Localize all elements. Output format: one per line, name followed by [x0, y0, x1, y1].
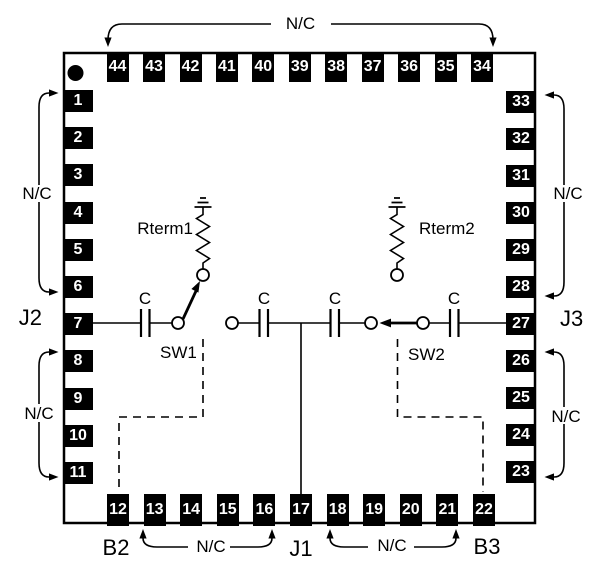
pin-3: 3 [63, 164, 93, 186]
pin-21: 21 [436, 494, 458, 526]
pin-26: 26 [506, 350, 536, 372]
pin-32: 32 [506, 128, 536, 150]
pin-10: 10 [63, 425, 93, 447]
nc-label-bottom-left: N/C [189, 538, 233, 555]
center-path [226, 309, 377, 494]
pin-30: 30 [506, 202, 536, 224]
pin-37: 37 [362, 52, 384, 82]
port-label-b2: B2 [94, 537, 138, 559]
pin-41: 41 [216, 52, 238, 82]
pin-14: 14 [180, 494, 202, 526]
cap3-label: C [325, 290, 345, 307]
port-label-b3: B3 [465, 536, 509, 558]
nc-label-left-upper: N/C [16, 185, 58, 202]
pin-16: 16 [253, 494, 275, 526]
pin27-series-capacitor [429, 309, 506, 337]
sw2-switch [380, 317, 430, 329]
pin-36: 36 [398, 52, 420, 82]
pin-38: 38 [325, 52, 347, 82]
cap4-label: C [444, 290, 464, 307]
ground-icon [389, 198, 406, 207]
cap1-label: C [135, 290, 155, 307]
nc-label-left-lower: N/C [18, 405, 60, 422]
pin1-indicator-dot [68, 65, 84, 81]
sw1-switch [172, 281, 200, 329]
pin-44: 44 [107, 52, 129, 82]
package-outline [64, 53, 535, 523]
ground-icon [195, 198, 212, 207]
pin-1: 1 [63, 90, 93, 112]
pin-24: 24 [506, 424, 536, 446]
pin-40: 40 [252, 52, 274, 82]
pin-4: 4 [63, 202, 93, 224]
pin-22: 22 [473, 494, 495, 526]
pin-19: 19 [363, 494, 385, 526]
port-label-j3: J3 [560, 308, 583, 330]
pin-13: 13 [144, 494, 166, 526]
pin-35: 35 [435, 52, 457, 82]
pin-42: 42 [180, 52, 202, 82]
pin-2: 2 [63, 127, 93, 149]
pin-9: 9 [63, 388, 93, 410]
pin-23: 23 [506, 461, 536, 483]
sw1-label: SW1 [160, 344, 197, 361]
capacitor-2 [260, 309, 269, 337]
rterm1-label: Rterm1 [118, 220, 193, 237]
pin-15: 15 [217, 494, 239, 526]
nc-label-right-lower: N/C [545, 408, 587, 425]
pin-5: 5 [63, 239, 93, 261]
pin-33: 33 [506, 91, 536, 113]
pin-8: 8 [63, 350, 93, 372]
pin-7: 7 [63, 313, 93, 335]
pin-6: 6 [63, 276, 93, 298]
pin-18: 18 [327, 494, 349, 526]
nc-label-top: N/C [278, 15, 323, 32]
port-label-j2: J2 [8, 307, 42, 329]
pinout-schematic-diagram: 4443424140393837363534123456789101133323… [0, 0, 605, 572]
pin-20: 20 [400, 494, 422, 526]
sw2-label: SW2 [408, 346, 445, 363]
pin-28: 28 [506, 276, 536, 298]
pin-11: 11 [63, 462, 93, 484]
pin-31: 31 [506, 165, 536, 187]
capacitor-3 [331, 309, 340, 337]
pin-29: 29 [506, 239, 536, 261]
nc-label-right-upper: N/C [547, 185, 589, 202]
pin-25: 25 [506, 387, 536, 409]
cap2-label: C [254, 290, 274, 307]
rterm2-label: Rterm2 [419, 220, 475, 237]
pin-27: 27 [506, 313, 536, 335]
pin7-series-capacitor [93, 309, 172, 337]
rterm1-resistor [195, 198, 212, 281]
nc-label-bottom-right: N/C [370, 537, 414, 554]
pin-12: 12 [107, 494, 129, 526]
pin-39: 39 [289, 52, 311, 82]
pin-43: 43 [143, 52, 165, 82]
pin-17: 17 [290, 494, 312, 526]
port-label-j1: J1 [279, 538, 323, 560]
rterm2-resistor [389, 198, 406, 281]
pin-34: 34 [471, 52, 493, 82]
